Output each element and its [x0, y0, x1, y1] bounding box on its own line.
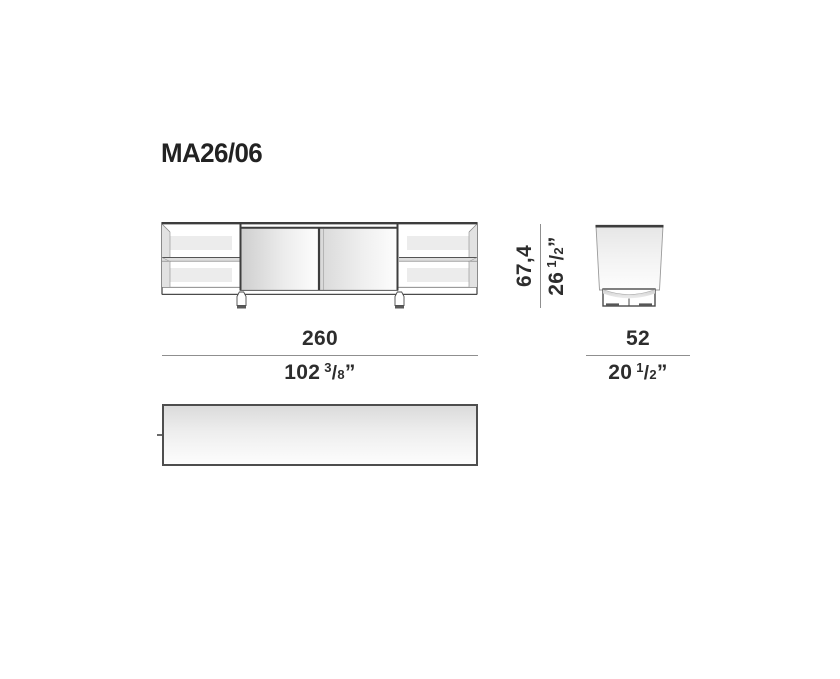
front-foot-left [237, 292, 246, 309]
height-dimension: 67,4 261/2” [495, 224, 587, 308]
spec-sheet-page: MA26/06 [0, 0, 840, 679]
plan-view-drawing [162, 404, 478, 466]
depth-dimension: 52 201/2” [586, 327, 690, 385]
right-middle-shelf [399, 258, 477, 262]
product-code: MA26/06 [161, 138, 262, 169]
side-base [603, 289, 655, 306]
side-foot-pad-right [639, 303, 652, 306]
front-elevation-drawing [161, 221, 478, 309]
height-cm-value: 67,4 [513, 245, 540, 287]
right-shelf-section [399, 224, 477, 287]
height-inch-value: 261/2” [541, 236, 569, 295]
right-upper-back-shadow [407, 236, 469, 250]
front-foot-right [395, 292, 404, 309]
plan-midpoint-tick [157, 434, 162, 436]
sliding-doors [240, 223, 398, 291]
left-upper-back-shadow [170, 236, 232, 250]
left-middle-shelf [162, 258, 240, 262]
left-shelf-section [162, 224, 240, 287]
width-cm-value: 260 [162, 327, 478, 355]
side-elevation-drawing [594, 224, 666, 310]
sliding-door-left [242, 227, 319, 291]
sliding-door-right [320, 227, 398, 291]
side-foot-pad-left [606, 303, 619, 306]
depth-inch-value: 201/2” [586, 356, 690, 385]
left-lower-back-shadow [170, 268, 232, 282]
width-inch-value: 1023/8” [162, 356, 478, 385]
depth-cm-value: 52 [586, 327, 690, 355]
width-dimension: 260 1023/8” [162, 327, 478, 385]
right-lower-back-shadow [407, 268, 469, 282]
side-body [596, 226, 664, 290]
